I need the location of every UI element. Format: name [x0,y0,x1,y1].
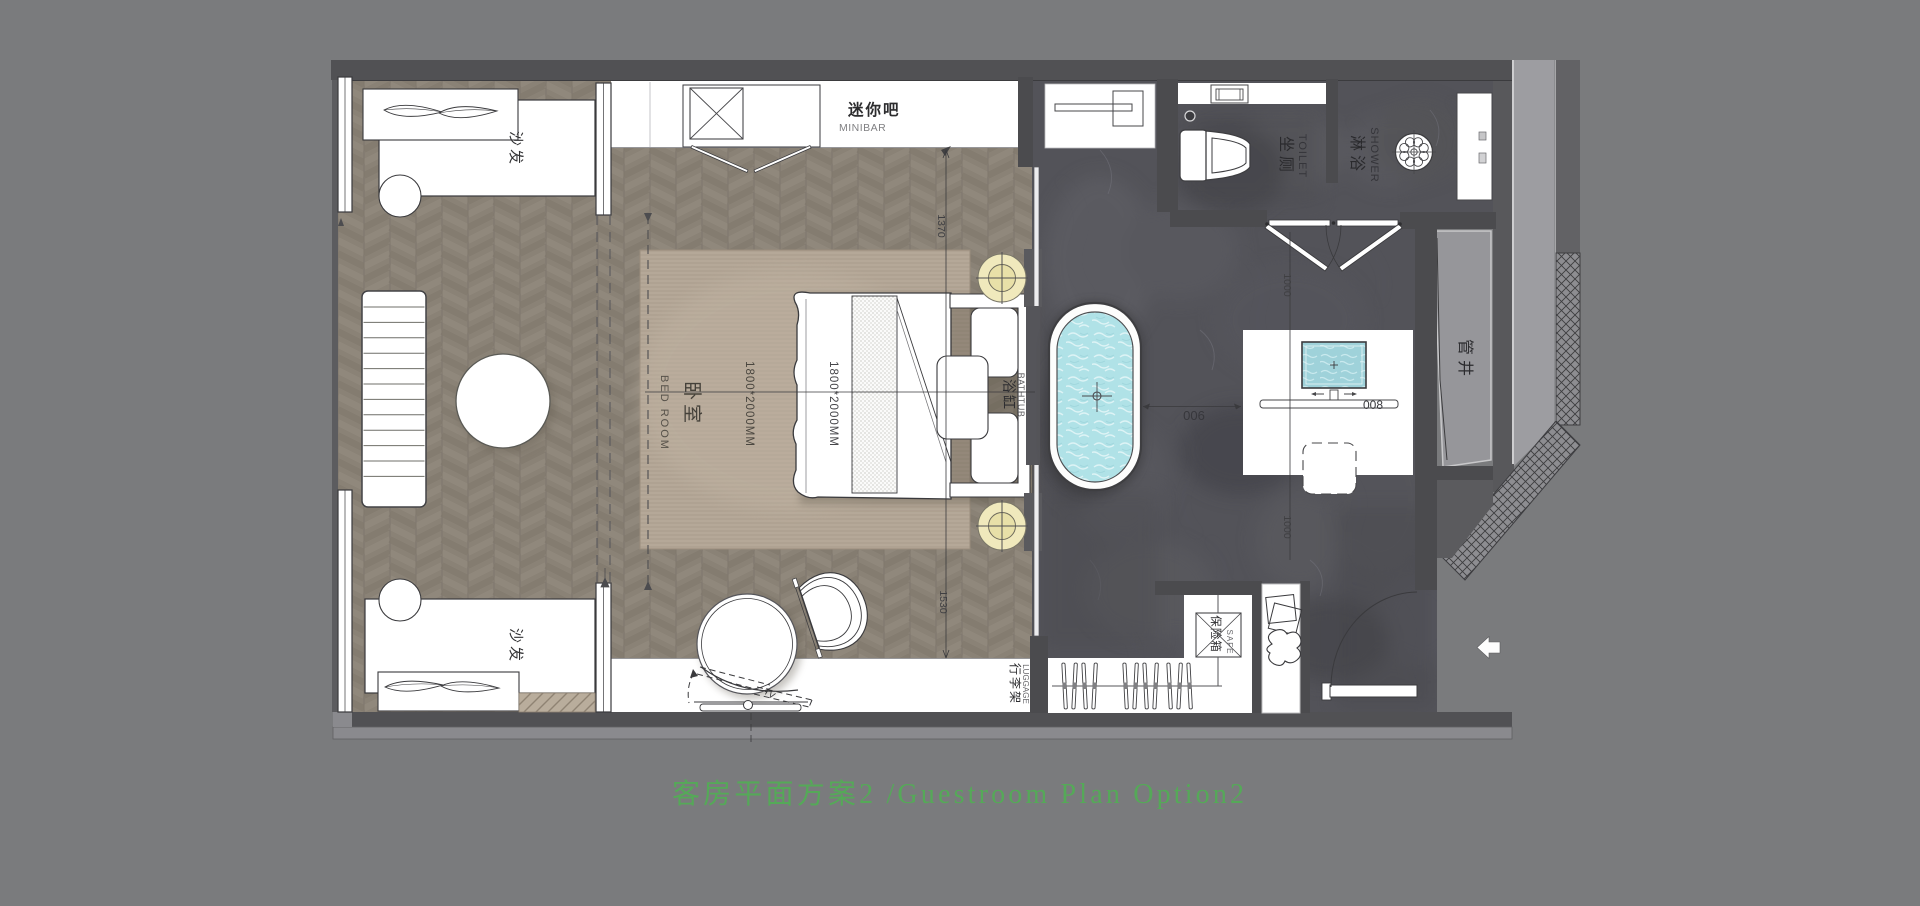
svg-text:1370: 1370 [935,214,947,238]
svg-text:LUGGAGE: LUGGAGE [1021,664,1030,704]
svg-text:1800*2000MM: 1800*2000MM [827,361,839,447]
svg-text:1000: 1000 [1281,515,1293,539]
svg-text:沙发: 沙发 [507,628,524,664]
svg-text:BATHTUB: BATHTUB [1016,373,1026,418]
svg-text:迷你吧: 迷你吧 [847,100,901,119]
svg-text:008: 008 [1363,398,1383,412]
svg-text:BED ROOM: BED ROOM [658,375,670,451]
svg-text:MINIBAR: MINIBAR [839,122,886,134]
svg-text:1000: 1000 [1281,273,1293,297]
svg-text:淋浴: 淋浴 [1348,135,1366,175]
svg-text:浴缸: 浴缸 [1001,379,1017,411]
svg-text:沙发: 沙发 [507,131,524,167]
svg-text:SAFE: SAFE [1225,630,1234,655]
svg-text:1800*2000MM: 1800*2000MM [743,361,755,447]
svg-text:006: 006 [1183,408,1205,423]
svg-text:卧室: 卧室 [681,381,703,427]
svg-text:SHOWER: SHOWER [1368,127,1380,183]
svg-text:管井: 管井 [1456,339,1474,381]
svg-text:1530: 1530 [937,590,949,614]
svg-text:坐厕: 坐厕 [1277,136,1295,176]
svg-text:TOILET: TOILET [1296,134,1308,178]
svg-text:行李架: 行李架 [1008,663,1023,705]
svg-text:保险箱: 保险箱 [1209,615,1223,653]
svg-text:客房平面方案2 /Guestroom Plan Option: 客房平面方案2 /Guestroom Plan Option2 [672,778,1248,810]
